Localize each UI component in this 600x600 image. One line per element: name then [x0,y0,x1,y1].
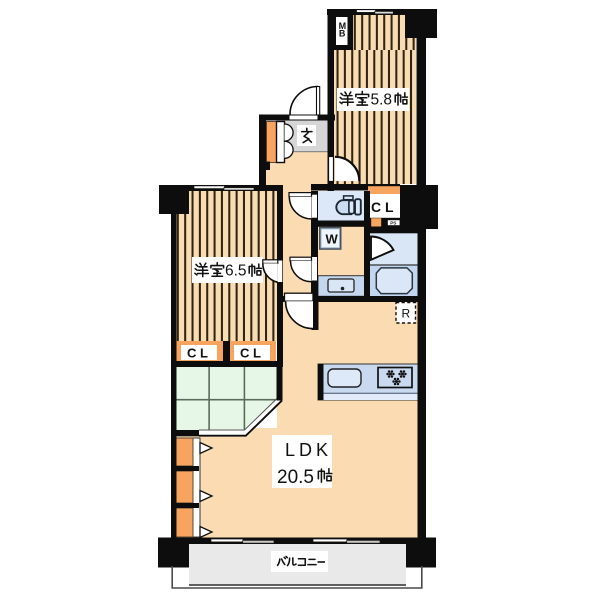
svg-text:6.5: 6.5 [225,263,247,280]
svg-text:PS: PS [390,221,396,226]
svg-text:W: W [326,232,339,247]
svg-text:C L: C L [240,346,261,361]
svg-text:C L: C L [371,199,394,215]
svg-text:R: R [402,307,411,321]
svg-text:C L: C L [187,346,208,361]
svg-text:B: B [339,28,346,38]
svg-text:LDK: LDK [285,440,332,460]
svg-text:20.5: 20.5 [277,467,314,488]
svg-text:5.8: 5.8 [371,91,393,108]
